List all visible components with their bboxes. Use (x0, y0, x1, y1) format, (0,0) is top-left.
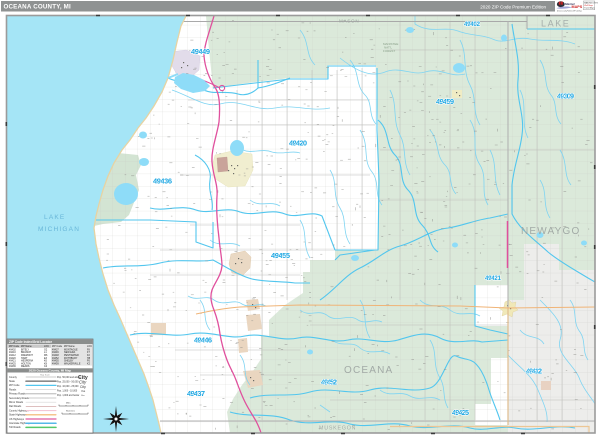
svg-text:Primary Roads: Primary Roads (9, 393, 26, 396)
svg-text:State Highways: State Highways (9, 414, 27, 417)
svg-text:Map Scale: Map Scale (40, 374, 50, 376)
svg-text:Minor Roads: Minor Roads (9, 401, 24, 404)
svg-text:LAKE: LAKE (541, 19, 570, 29)
svg-text:MICHIGAN: MICHIGAN (38, 226, 80, 233)
svg-text:49436: 49436 (153, 177, 172, 186)
svg-text:OCEANA COUNTY, MI: OCEANA COUNTY, MI (4, 4, 72, 11)
svg-text:City: City (80, 385, 86, 389)
svg-text:49459: 49459 (52, 362, 59, 365)
svg-text:49421: 49421 (485, 275, 501, 282)
svg-text:2020 Oceana County, MI Map: 2020 Oceana County, MI Map (29, 369, 72, 373)
svg-text:49446: 49446 (194, 336, 212, 345)
svg-text:Miles: Miles (66, 403, 70, 405)
svg-text:MAPS: MAPS (572, 5, 583, 9)
svg-text:ZIP Code: ZIP Code (9, 384, 20, 387)
svg-text:Toll Roads: Toll Roads (9, 426, 21, 429)
svg-text:Pop. 10,000 - 25,000: Pop. 10,000 - 25,000 (57, 386, 79, 388)
svg-text:OCEANA: OCEANA (344, 365, 393, 376)
svg-text:2020 ZIP Code Premium Edition: 2020 ZIP Code Premium Edition (480, 5, 546, 10)
svg-text:49449: 49449 (191, 47, 210, 56)
svg-text:County: County (9, 376, 18, 379)
svg-text:WALKERVILLE: WALKERVILLE (64, 362, 81, 365)
svg-text:FOREST: FOREST (383, 49, 395, 53)
svg-text:49459: 49459 (436, 97, 454, 106)
svg-text:US Highways: US Highways (9, 418, 25, 421)
svg-text:Pop. 25,000 - 50,000: Pop. 25,000 - 50,000 (57, 382, 79, 384)
svg-text:Roads: Roads (9, 388, 17, 391)
svg-text:ZIP Code Index/Grid Locator: ZIP Code Index/Grid Locator (9, 340, 53, 344)
svg-text:NEWAYGO: NEWAYGO (521, 226, 581, 237)
svg-text:MUSKEGON: MUSKEGON (319, 426, 356, 432)
svg-text:49309: 49309 (557, 92, 574, 101)
svg-text:Yes: Yes (81, 389, 86, 393)
svg-text:49452: 49452 (321, 378, 337, 387)
svg-text:49455: 49455 (271, 251, 290, 260)
svg-text:49402: 49402 (464, 21, 480, 28)
svg-text:Rail Roads: Rail Roads (9, 405, 22, 408)
svg-text:49437: 49437 (187, 389, 205, 398)
svg-text:49425: 49425 (452, 408, 469, 417)
svg-text:Pop. 1,000 and below: Pop. 1,000 and below (57, 395, 80, 397)
svg-text:LAKE: LAKE (44, 214, 65, 221)
svg-text:Kilometers: Kilometers (66, 410, 75, 413)
svg-text:Pop. 1,000 - 10,000: Pop. 1,000 - 10,000 (57, 391, 78, 393)
svg-text:MASON: MASON (339, 19, 359, 24)
svg-text:Travel Maps: Travel Maps (584, 6, 594, 9)
svg-text:City: City (79, 380, 87, 385)
svg-text:49412: 49412 (526, 367, 542, 376)
svg-text:49420: 49420 (289, 139, 307, 148)
svg-text:49436: 49436 (9, 365, 16, 368)
svg-text:State: State (9, 380, 15, 383)
